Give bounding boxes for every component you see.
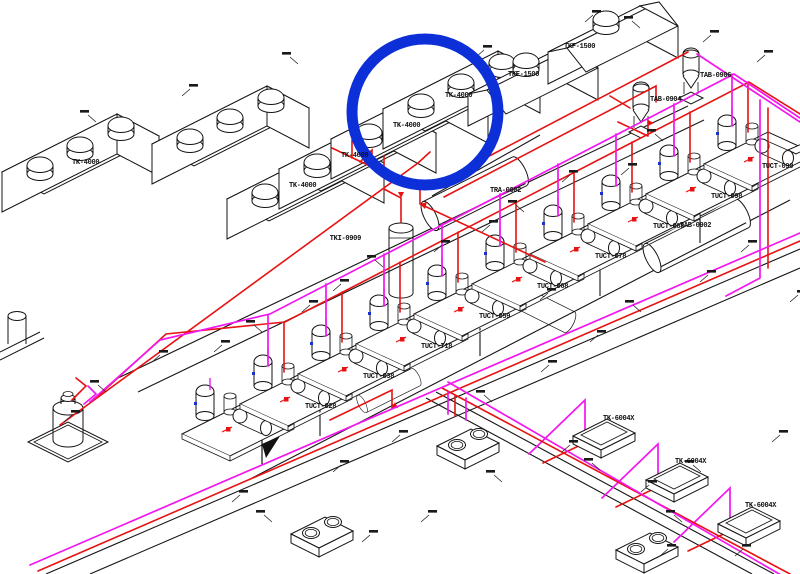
skid-tag: TUCT-038 bbox=[363, 373, 394, 381]
skid-tag: TUCT-078 bbox=[595, 253, 626, 261]
basin bbox=[616, 533, 678, 574]
basin bbox=[291, 517, 353, 558]
skid-tag: TUCT-028 bbox=[305, 403, 336, 411]
skid-tag: TUCT-718 bbox=[421, 343, 452, 351]
enclosure-tag: TK-6004X bbox=[745, 502, 777, 510]
basin bbox=[437, 429, 499, 470]
tank-tag: TK-4000 bbox=[289, 182, 316, 190]
tank-tag: TK-4000 bbox=[393, 122, 420, 130]
enclosure bbox=[529, 400, 635, 463]
enclosure bbox=[674, 488, 780, 551]
tank-farm bbox=[2, 2, 678, 239]
hopper-tag: TAB-0904 bbox=[650, 96, 681, 104]
enclosure-tag: TK-6004X bbox=[675, 458, 707, 466]
tank-tag: TK-4000 bbox=[445, 92, 472, 100]
skid-tag: TUCT-088 bbox=[653, 223, 684, 231]
tank-tag: TK-4000 bbox=[341, 152, 368, 160]
column-tag: TKI-0909 bbox=[330, 235, 361, 243]
drum-tag: TRA-0002 bbox=[490, 187, 521, 195]
enclosure-tag: TK-6004X bbox=[603, 415, 635, 423]
isometric-plant-drawing: TK-4000 TK-4000 TK-4000 TK-4000 TK-4000 … bbox=[0, 0, 800, 574]
column-vessel bbox=[389, 223, 413, 298]
tank-tag: TKF-1500 bbox=[564, 43, 595, 51]
vertical-vessel bbox=[28, 392, 108, 463]
tank-tag: TKE-1500 bbox=[508, 71, 539, 79]
hopper-tag: TAB-0906 bbox=[700, 72, 731, 80]
left-edge-equipment bbox=[0, 312, 44, 361]
skid-tag: TUCT-068 bbox=[537, 283, 568, 291]
skid-tag: TUCT-090 bbox=[762, 163, 793, 171]
dosing-skid-row bbox=[182, 108, 800, 461]
skid-tag: TUCT-059 bbox=[479, 313, 510, 321]
htank-tag: TAB-0902 bbox=[680, 222, 711, 230]
flag-symbol bbox=[262, 436, 280, 464]
skid-tag: TUCT-098 bbox=[711, 193, 742, 201]
enclosure bbox=[602, 444, 708, 507]
tank-tag: TK-4000 bbox=[72, 159, 99, 167]
